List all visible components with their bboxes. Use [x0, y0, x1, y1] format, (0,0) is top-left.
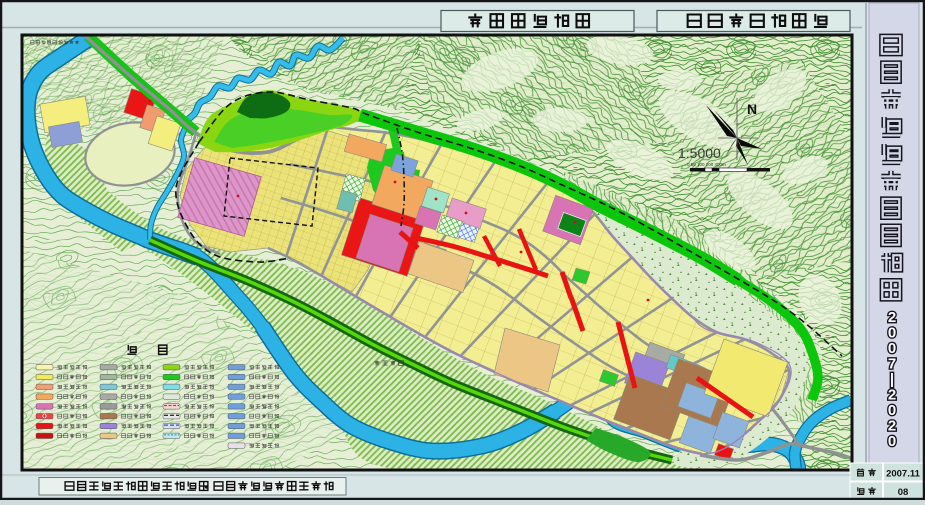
svg-text:08: 08 [898, 487, 909, 498]
svg-text:|: | [890, 371, 894, 388]
svg-text:0: 0 [888, 340, 896, 357]
svg-text:0: 0 [888, 402, 896, 419]
svg-text:2: 2 [888, 309, 896, 326]
svg-text:0: 0 [888, 325, 896, 342]
svg-text:0: 0 [888, 433, 896, 450]
svg-text:N: N [747, 101, 757, 117]
svg-text:7: 7 [888, 356, 896, 373]
svg-text:1:5000: 1:5000 [678, 145, 721, 161]
svg-text:2007.11: 2007.11 [886, 469, 921, 480]
svg-text:0 50 100 200: 0 50 100 200 400m [687, 162, 726, 167]
svg-text:2: 2 [888, 418, 896, 435]
svg-text:2: 2 [888, 387, 896, 404]
